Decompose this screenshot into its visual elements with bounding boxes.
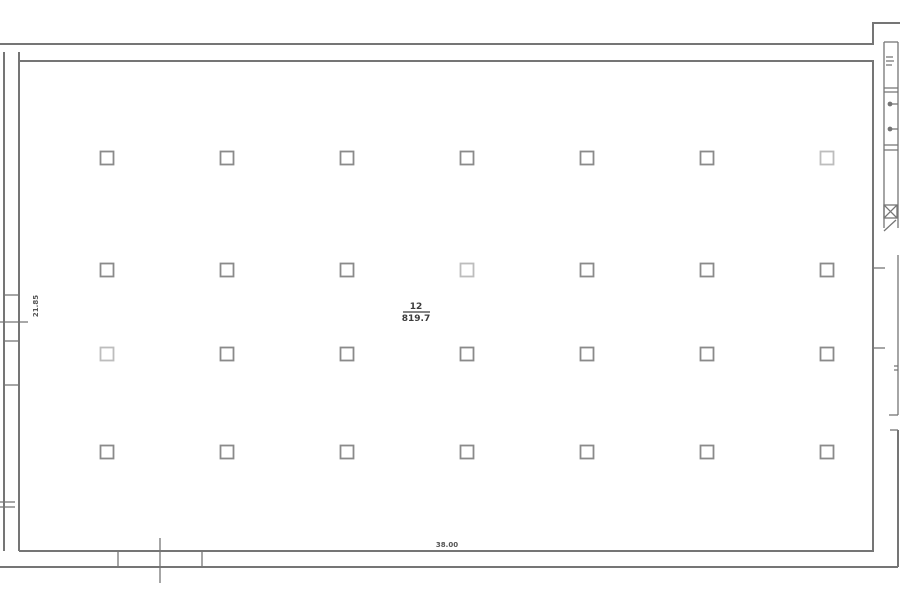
column-marker [461, 264, 474, 277]
column-marker [221, 446, 234, 459]
column-marker [221, 264, 234, 277]
column-marker [581, 348, 594, 361]
annex-fixture-dot [888, 127, 893, 132]
column-marker [821, 152, 834, 165]
column-marker [221, 348, 234, 361]
column-marker [581, 264, 594, 277]
floorplan-page: 12 819.7 38.00 21.85 [0, 0, 900, 600]
column-marker [581, 446, 594, 459]
column-marker [581, 152, 594, 165]
column-marker [461, 348, 474, 361]
column-marker [821, 446, 834, 459]
column-marker [221, 152, 234, 165]
column-marker [101, 264, 114, 277]
column-marker [821, 264, 834, 277]
column-marker [101, 152, 114, 165]
column-marker [341, 348, 354, 361]
column-marker [101, 446, 114, 459]
dimension-vertical: 21.85 [32, 295, 40, 317]
column-marker [701, 264, 714, 277]
floorplan-canvas: 12 819.7 38.00 21.85 [0, 0, 900, 600]
dimension-horizontal: 38.00 [436, 541, 458, 549]
column-marker [701, 348, 714, 361]
room-area: 819.7 [402, 314, 430, 324]
column-marker [701, 152, 714, 165]
column-marker [461, 446, 474, 459]
column-marker [701, 446, 714, 459]
column-marker [101, 348, 114, 361]
drawing-background [0, 0, 900, 600]
annex-fixture-dot [888, 102, 893, 107]
room-number: 12 [410, 302, 423, 312]
column-marker [341, 446, 354, 459]
column-marker [461, 152, 474, 165]
column-marker [341, 264, 354, 277]
column-marker [821, 348, 834, 361]
column-marker [341, 152, 354, 165]
